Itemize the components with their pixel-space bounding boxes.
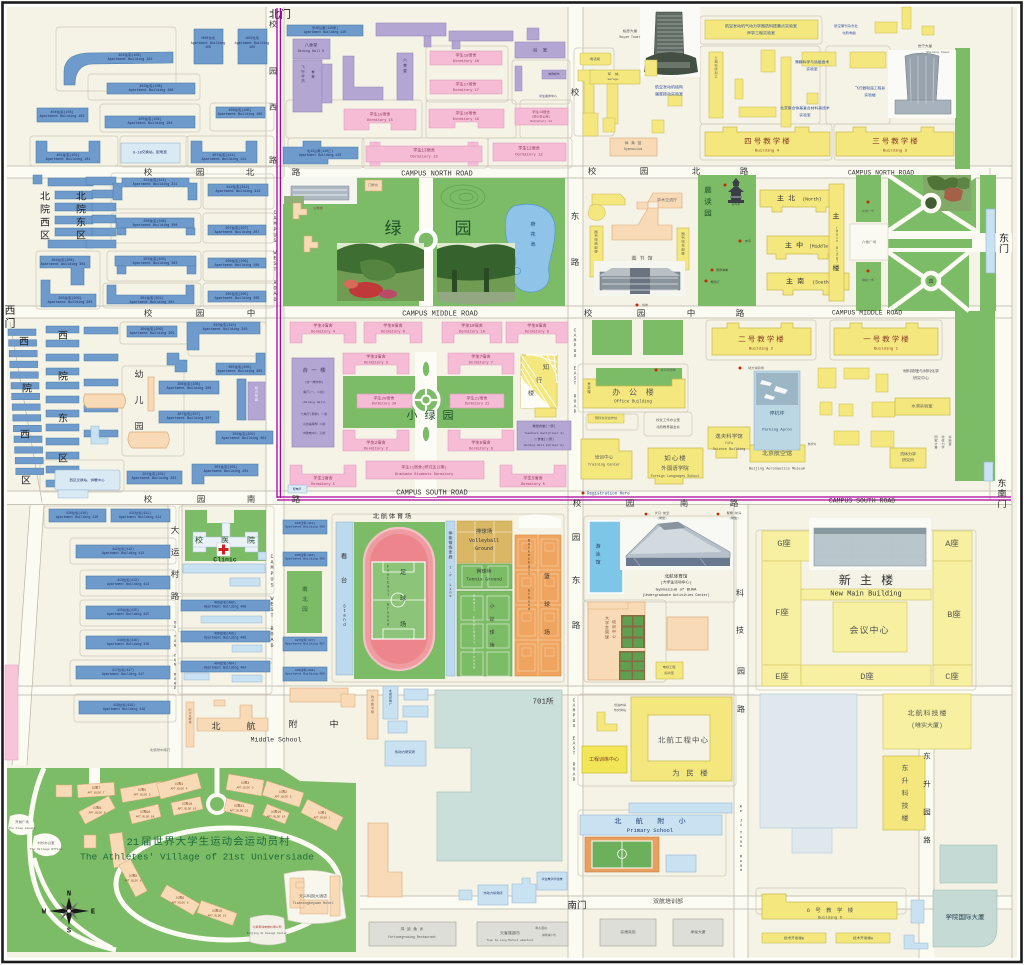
svg-text:Apartment Building 310: Apartment Building 310 <box>203 327 248 332</box>
svg-text:Dormitory 20: Dormitory 20 <box>372 402 396 407</box>
svg-text:E: E <box>91 909 95 917</box>
svg-text:Dormitory 14: Dormitory 14 <box>530 119 552 123</box>
svg-text:G: G <box>777 539 782 549</box>
svg-text:Apartment Building 203: Apartment Building 203 <box>48 300 93 305</box>
svg-text:(: ( <box>729 516 731 520</box>
svg-text:1002: 1002 <box>245 36 253 40</box>
svg-text:Apartment Building 103: Apartment Building 103 <box>40 114 85 119</box>
svg-text:New Main Building: New Main Building <box>830 591 901 599</box>
svg-text:8: 8 <box>135 874 137 878</box>
svg-text:Apartment Building 207: Apartment Building 207 <box>215 230 260 235</box>
svg-text:Garage: Garage <box>608 78 619 81</box>
svg-text:Foreign Languages School: Foreign Languages School <box>651 474 700 479</box>
svg-text:(Middle): (Middle) <box>809 244 831 250</box>
svg-text:109: 109 <box>249 45 255 49</box>
svg-text:Beijing Aeronautics Museum: Beijing Aeronautics Museum <box>749 466 805 471</box>
svg-text:Building 1: Building 1 <box>874 346 899 351</box>
svg-text:D: D <box>860 672 865 682</box>
svg-text:2: 2 <box>285 790 287 794</box>
svg-text:B: B <box>947 610 952 620</box>
svg-text:O: O <box>573 767 576 773</box>
svg-text:Dormitory 5: Dormitory 5 <box>521 482 545 487</box>
svg-text:): ) <box>549 115 551 119</box>
svg-text:S: S <box>67 928 71 936</box>
svg-text:13: 13 <box>422 150 428 154</box>
svg-text:n: n <box>836 239 838 243</box>
svg-text:Apartment Building 413: Apartment Building 413 <box>107 582 149 586</box>
svg-text:A: A <box>573 703 576 709</box>
svg-text:Apartment Building 205: Apartment Building 205 <box>215 296 260 301</box>
svg-text:(407): (407) <box>306 638 315 642</box>
svg-text:APT.BLDG 5: APT.BLDG 5 <box>134 794 151 797</box>
svg-text:9: 9 <box>182 896 184 900</box>
svg-text:701: 701 <box>533 699 547 707</box>
svg-text:Boyan Tower: Boyan Tower <box>619 35 640 39</box>
svg-text:(: ( <box>660 580 662 585</box>
svg-text:Apartment Building 409: Apartment Building 409 <box>285 672 325 676</box>
svg-text:l: l <box>473 608 475 613</box>
svg-text:15: 15 <box>378 113 383 117</box>
svg-text:(: ( <box>305 380 307 384</box>
svg-text:Science Building: Science Building <box>713 447 746 452</box>
svg-text:.: . <box>449 578 451 582</box>
svg-text:(North): (North) <box>803 197 822 203</box>
svg-text:4: 4 <box>181 782 183 786</box>
svg-text:Apartment Building 304: Apartment Building 304 <box>41 262 86 267</box>
svg-text:l: l <box>473 640 475 645</box>
svg-text:Office Building: Office Building <box>614 400 652 405</box>
svg-text:Fortunegrowing Restaurant: Fortunegrowing Restaurant <box>388 935 436 939</box>
svg-text:C: C <box>945 672 950 682</box>
svg-text:(: ( <box>310 412 312 416</box>
svg-text:Apartment Building 311: Apartment Building 311 <box>133 182 178 187</box>
svg-text:1: 1 <box>324 811 326 815</box>
svg-text:Gymnasium: Gymnasium <box>624 147 642 152</box>
svg-text:d: d <box>387 622 389 627</box>
svg-text:APT.BLDG 3: APT.BLDG 3 <box>237 787 254 790</box>
svg-text:Dormitory 4: Dormitory 4 <box>311 329 335 334</box>
svg-text:(405): (405) <box>306 553 315 557</box>
svg-text:Apartment Building 411: Apartment Building 411 <box>119 515 161 519</box>
svg-text:Apartment Building 105: Apartment Building 105 <box>218 112 263 117</box>
svg-text:Volleyball: Volleyball <box>469 538 499 544</box>
svg-text:): ) <box>552 437 554 441</box>
svg-text:Dormitory 17: Dormitory 17 <box>453 88 479 93</box>
svg-text:S: S <box>573 723 576 729</box>
svg-text:T: T <box>573 751 576 757</box>
svg-text:Dormitory 8: Dormitory 8 <box>525 329 549 334</box>
svg-text:(South): (South) <box>813 280 832 286</box>
svg-text:Apartment Building 419: Apartment Building 419 <box>103 707 145 711</box>
svg-text:CAMPUS SOUTH ROAD: CAMPUS SOUTH ROAD <box>829 497 895 504</box>
svg-text:Apartment Building 102: Apartment Building 102 <box>108 57 153 62</box>
svg-text:Apartment Building 301: Apartment Building 301 <box>130 300 175 305</box>
svg-text:16: 16 <box>464 112 469 116</box>
svg-text:Tian Ke Long Market abantent: Tian Ke Long Market abantent <box>487 938 534 942</box>
svg-text:Apartment Building 312: Apartment Building 312 <box>216 189 261 194</box>
svg-text:APT.BLDG 6A: APT.BLDG 6A <box>136 816 155 819</box>
svg-text:12: 12 <box>527 148 533 152</box>
svg-text:D: D <box>270 643 273 649</box>
svg-text:): ) <box>322 380 324 384</box>
svg-text:S: S <box>574 353 577 359</box>
svg-text:6A: 6A <box>146 810 150 814</box>
svg-text:Tianxingkeyuan Hotel: Tianxingkeyuan Hotel <box>293 901 334 906</box>
svg-text:Dormitory 18: Dormitory 18 <box>453 59 479 64</box>
svg-text:A: A <box>945 539 951 549</box>
svg-text:P: P <box>574 343 577 349</box>
svg-text:Dining Hall 8: Dining Hall 8 <box>298 49 324 54</box>
svg-text:): ) <box>737 516 739 520</box>
svg-text:Shining Tower: Shining Tower <box>926 50 950 54</box>
svg-text:Clinic: Clinic <box>213 556 237 563</box>
svg-text:D: D <box>273 297 276 303</box>
svg-text:d: d <box>473 666 475 671</box>
svg-text:(: ( <box>422 465 424 470</box>
svg-text:APT.BLDG 4: APT.BLDG 4 <box>171 788 188 791</box>
svg-text:Apartment Building 302: Apartment Building 302 <box>222 436 267 441</box>
svg-text:Apartment Building 415: Apartment Building 415 <box>107 612 149 616</box>
svg-text:Dormitory 2: Dormitory 2 <box>364 446 388 451</box>
svg-text:CAMPUS MIDDLE ROAD: CAMPUS MIDDLE ROAD <box>402 310 478 318</box>
svg-text:Apartment Building 405: Apartment Building 405 <box>285 557 325 561</box>
svg-text:10: 10 <box>218 909 222 913</box>
svg-text:A: A <box>574 371 577 377</box>
svg-text:Apartment Building 206: Apartment Building 206 <box>215 263 260 268</box>
svg-text:APT.BLDG 2: APT.BLDG 2 <box>275 796 292 799</box>
svg-text:Apartment Building 417: Apartment Building 417 <box>102 672 144 676</box>
svg-text:The Flag square: The Flag square <box>8 826 35 830</box>
svg-text:Apartment Building 416: Apartment Building 416 <box>107 642 149 646</box>
svg-text:Building 2: Building 2 <box>749 346 774 351</box>
svg-text:Apartment Building 111: Apartment Building 111 <box>202 157 247 162</box>
svg-text:Apartment Building 202: Apartment Building 202 <box>132 476 177 481</box>
svg-text:): ) <box>939 722 943 729</box>
svg-text:APT.BLDG 10: APT.BLDG 10 <box>178 808 197 811</box>
svg-text:Parking Apron: Parking Apron <box>762 427 792 432</box>
svg-text:P: P <box>573 713 576 719</box>
svg-text:Dormitory 1: Dormitory 1 <box>311 482 335 487</box>
svg-text:APT.BLDG 19: APT.BLDG 19 <box>267 816 286 819</box>
svg-text:CAMPUS NORTH ROAD: CAMPUS NORTH ROAD <box>848 169 914 176</box>
svg-text:(: ( <box>544 437 546 441</box>
svg-text:106: 106 <box>205 45 211 49</box>
svg-text:Yifu: Yifu <box>725 441 733 446</box>
svg-text:Apartment Building 108: Apartment Building 108 <box>129 88 174 93</box>
svg-text:Middle School: Middle School <box>251 736 302 743</box>
svg-text:CAMPUS NORTH ROAD: CAMPUS NORTH ROAD <box>401 170 472 178</box>
svg-text:Apartment Building 412: Apartment Building 412 <box>102 551 144 555</box>
svg-text:11: 11 <box>409 466 414 470</box>
svg-text:Graduate Students Dormitory: Graduate Students Dormitory <box>395 472 454 477</box>
svg-text:21: 21 <box>475 397 480 401</box>
svg-text:7: 7 <box>98 786 100 790</box>
svg-text:The Athletes' Village of 21st: The Athletes' Village of 21st Universiad… <box>80 851 314 862</box>
svg-text:Apartment Building 306: Apartment Building 306 <box>167 386 212 391</box>
svg-text:T: T <box>574 381 577 387</box>
svg-text:Dormitory 3: Dormitory 3 <box>364 360 388 365</box>
svg-text:Tennis Ground: Tennis Ground <box>466 577 502 583</box>
svg-text:O: O <box>574 399 577 405</box>
svg-text:): ) <box>665 516 667 520</box>
svg-text:Building 3: Building 3 <box>883 148 908 153</box>
svg-text:APT.BLDG 6: APT.BLDG 6 <box>89 812 106 815</box>
svg-text:Dormitory 13: Dormitory 13 <box>410 154 438 159</box>
svg-text:21: 21 <box>127 837 140 849</box>
svg-text:Apartment Building 403: Apartment Building 403 <box>285 525 325 529</box>
svg-text:S: S <box>273 238 276 244</box>
svg-text:T: T <box>270 613 273 619</box>
svg-text:19: 19 <box>277 810 281 814</box>
svg-text:): ) <box>318 412 320 416</box>
svg-text:Registration Here: Registration Here <box>587 492 630 497</box>
svg-text:Apartment Building 404: Apartment Building 404 <box>204 665 246 669</box>
svg-text:Apartment Building 407: Apartment Building 407 <box>285 642 325 646</box>
svg-text:APT.BLDG 9: APT.BLDG 9 <box>172 902 189 905</box>
svg-text:CAMPUS SOUTH ROAD: CAMPUS SOUTH ROAD <box>396 489 467 497</box>
svg-text:J: J <box>740 819 742 823</box>
svg-text:Primary School: Primary School <box>627 827 673 834</box>
svg-text:Dormitory 7: Dormitory 7 <box>469 360 493 365</box>
svg-text:A: A <box>574 333 577 339</box>
svg-text:N: N <box>67 891 71 899</box>
svg-text:Apartment Building 309: Apartment Building 309 <box>130 331 175 336</box>
svg-text:): ) <box>836 259 838 263</box>
svg-text:(: ( <box>309 390 311 394</box>
svg-text:(: ( <box>545 424 547 428</box>
svg-text:Dormitory 10: Dormitory 10 <box>459 329 485 334</box>
svg-text:T: T <box>273 267 276 273</box>
svg-text:APT.BLDG 7: APT.BLDG 7 <box>88 792 105 795</box>
svg-text:Apartment Building 303: Apartment Building 303 <box>133 261 178 266</box>
svg-text:Apartment Building 104: Apartment Building 104 <box>128 121 173 126</box>
svg-text:E: E <box>775 672 780 682</box>
svg-text:21: 21 <box>240 804 244 808</box>
svg-text:6: 6 <box>99 806 101 810</box>
svg-text:Gymnasium of BUAA: Gymnasium of BUAA <box>656 587 697 592</box>
svg-text:S: S <box>270 582 273 588</box>
svg-text:e: e <box>449 595 451 599</box>
svg-text:(: ( <box>657 516 659 520</box>
svg-text:(403): (403) <box>306 521 315 525</box>
svg-text:9-10: 9-10 <box>133 151 142 155</box>
svg-text:A: A <box>573 741 576 747</box>
svg-text:Apartment Building 408: Apartment Building 408 <box>204 604 246 608</box>
svg-text:Dormitory 16: Dormitory 16 <box>453 117 479 122</box>
svg-text:1001: 1001 <box>201 36 209 40</box>
svg-text:d: d <box>528 607 530 612</box>
svg-text:Dormitory 9: Dormitory 9 <box>381 329 405 334</box>
svg-text:10: 10 <box>470 325 476 329</box>
svg-text:): ) <box>444 465 446 470</box>
svg-text:17: 17 <box>464 83 469 87</box>
svg-text:Apartment Building 208: Apartment Building 208 <box>133 223 178 228</box>
svg-text:(Undergraduate Activities Cent: (Undergraduate Activities Center) <box>642 593 709 598</box>
svg-text:D: D <box>573 777 576 783</box>
svg-text:): ) <box>554 424 556 428</box>
svg-text:Apartment Building 201: Apartment Building 201 <box>204 469 249 474</box>
svg-text:6: 6 <box>807 907 810 914</box>
svg-text:Apartment Building 410: Apartment Building 410 <box>56 515 98 519</box>
svg-text:CAMPUS MIDDLE ROAD: CAMPUS MIDDLE ROAD <box>832 309 902 316</box>
svg-text:5: 5 <box>144 788 146 792</box>
svg-text:APT.BLDG 21: APT.BLDG 21 <box>230 810 249 813</box>
svg-text:Teachers Hall(Floor 1): Teachers Hall(Floor 1) <box>524 431 564 435</box>
svg-text:F: F <box>775 608 780 618</box>
svg-text:): ) <box>689 580 691 585</box>
svg-text:3: 3 <box>247 781 249 785</box>
svg-text:·: · <box>733 511 735 515</box>
svg-text:Apartment Building 307: Apartment Building 307 <box>167 416 212 421</box>
svg-text:APT.BLDG 8: APT.BLDG 8 <box>125 880 142 883</box>
svg-text:Training Center: Training Center <box>588 462 620 467</box>
svg-text:Apartment Building 110: Apartment Building 110 <box>304 30 346 34</box>
svg-text:Dormitory 6: Dormitory 6 <box>469 446 493 451</box>
svg-text:(Dining Hall): (Dining Hall) <box>302 400 326 404</box>
svg-text:APT.BLDG 1: APT.BLDG 1 <box>314 817 331 820</box>
svg-text:20: 20 <box>382 397 387 401</box>
svg-text:Building 6: Building 6 <box>818 915 843 920</box>
svg-text:10: 10 <box>188 802 192 806</box>
svg-text:(409): (409) <box>306 668 315 672</box>
svg-text:): ) <box>323 390 325 394</box>
svg-text:Apartment Building 305: Apartment Building 305 <box>218 369 263 374</box>
svg-text:Dining Hall 2(Floor 2): Dining Hall 2(Floor 2) <box>524 443 564 447</box>
svg-text:Building 4: Building 4 <box>755 148 780 153</box>
svg-text:D: D <box>574 409 577 415</box>
svg-text:Dormitory 12: Dormitory 12 <box>515 152 543 157</box>
svg-text:·: · <box>661 511 663 515</box>
svg-text:Ground: Ground <box>475 546 493 552</box>
svg-text:Apartment Building 406: Apartment Building 406 <box>204 635 246 639</box>
svg-text:(: ( <box>911 722 915 729</box>
svg-text:18: 18 <box>464 54 469 58</box>
svg-text:(: ( <box>532 115 534 119</box>
svg-text:l: l <box>528 572 530 577</box>
svg-text:Dormitory 15: Dormitory 15 <box>367 118 393 123</box>
svg-text:14: 14 <box>539 111 543 115</box>
svg-text:APT.BLDG 10: APT.BLDG 10 <box>208 915 227 918</box>
svg-text:Apartment Building 101: Apartment Building 101 <box>46 157 91 162</box>
svg-text:The Village Office: The Village Office <box>30 847 63 851</box>
svg-text:Dormitory 21: Dormitory 21 <box>465 402 489 407</box>
svg-text:Apartment Building 110: Apartment Building 110 <box>299 153 341 157</box>
svg-text:Beijing 3L Design Center: Beijing 3L Design Center <box>247 931 288 935</box>
